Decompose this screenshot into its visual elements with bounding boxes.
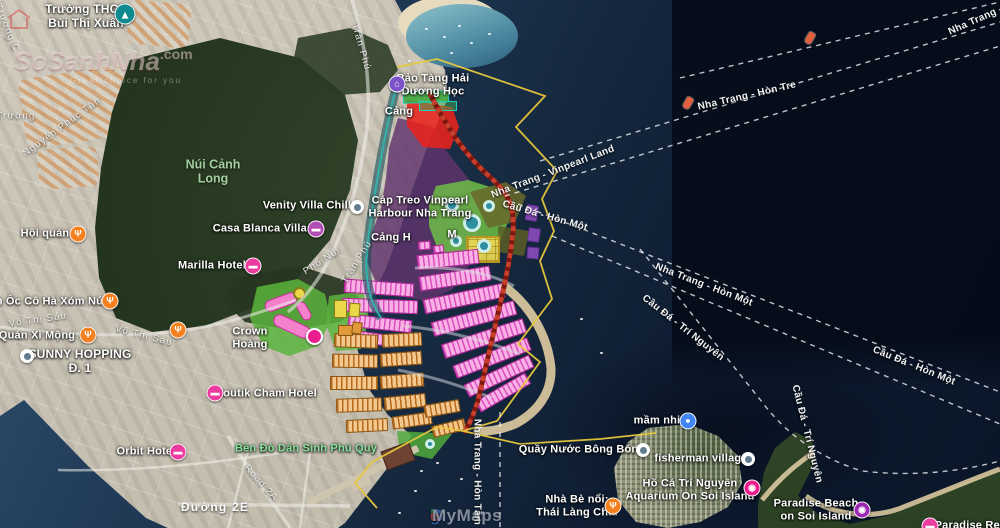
pink-marker-icon[interactable] bbox=[306, 328, 323, 345]
orange-housing-row bbox=[431, 418, 467, 438]
roundabout bbox=[425, 439, 435, 449]
icon-glyph: Ψ bbox=[174, 326, 181, 335]
cang-m-fragment-label[interactable]: M bbox=[447, 229, 456, 242]
school-icon[interactable]: ▴ bbox=[115, 4, 136, 25]
dot-center bbox=[640, 447, 647, 454]
cap-treo-vinpearl-label[interactable]: Cáp Treo VinpearlHarbour Nha Trang bbox=[368, 194, 471, 219]
small-boat-dot bbox=[470, 42, 473, 44]
sunny-hopping-label[interactable]: SUNNY HOPPINGĐ. 1 bbox=[28, 348, 131, 376]
orange-housing-row bbox=[332, 354, 378, 369]
small-boat-dot bbox=[425, 28, 428, 30]
boutik-cham-hotel-label[interactable]: Boutik Cham Hotel bbox=[215, 388, 317, 401]
pink-housing-row bbox=[432, 244, 444, 253]
small-boat-dot bbox=[420, 470, 423, 472]
orange-housing-row bbox=[382, 332, 423, 348]
small-boat-dot bbox=[414, 490, 417, 492]
small-boat-dot bbox=[600, 352, 603, 354]
restaurant-icon[interactable]: Ψ bbox=[170, 322, 187, 339]
violet-block bbox=[527, 227, 541, 243]
icon-glyph: ⌂ bbox=[394, 80, 399, 89]
quay-nuoc-bong-bong-label[interactable]: Quầy Nước Bông Bóng bbox=[519, 444, 646, 457]
orange-housing-row bbox=[380, 351, 423, 368]
icon-glyph: ● bbox=[685, 417, 690, 426]
hotel-icon[interactable]: ▬ bbox=[308, 221, 325, 238]
small-boat-dot bbox=[580, 318, 583, 320]
cang-h-fragment-label[interactable]: Cảng H bbox=[371, 232, 411, 245]
icon-glyph: Ψ bbox=[74, 230, 81, 239]
bao-tang-hai-duong-hoc-label[interactable]: Bảo Tàng HảiDương Học bbox=[397, 72, 470, 97]
icon-glyph: ▬ bbox=[312, 225, 321, 234]
quan-xi-mong-label[interactable]: Quán Xì Mộng bbox=[0, 330, 75, 343]
icon-glyph: ▬ bbox=[211, 389, 220, 398]
dot-icon[interactable] bbox=[636, 443, 650, 457]
icon-glyph: ▬ bbox=[926, 522, 935, 528]
small-boat-dot bbox=[443, 36, 446, 38]
kindergarten-icon[interactable]: ● bbox=[680, 413, 697, 430]
icon-glyph: ▬ bbox=[249, 262, 258, 271]
small-boat-dot bbox=[450, 52, 453, 54]
small-boat-dot bbox=[398, 512, 401, 514]
casa-blanca-villas-label[interactable]: Casa Blanca Villas bbox=[213, 223, 314, 236]
plan-yellow-block bbox=[348, 303, 360, 318]
mymaps-label: MyMaps bbox=[432, 506, 502, 526]
cang-cau-da-label[interactable]: Cảng bbox=[385, 106, 413, 119]
hoi-quan-label[interactable]: Hội quán bbox=[21, 228, 70, 241]
dot-center bbox=[24, 353, 31, 360]
pink-housing-row bbox=[416, 249, 479, 270]
orange-housing-row bbox=[330, 376, 378, 390]
hotel-icon[interactable]: ▬ bbox=[207, 385, 224, 402]
ho-ca-tri-nguyen-aquarium-label[interactable]: Hồ Cá Trí NguyênAquarium On Soi Island bbox=[625, 477, 754, 502]
plan-orange-block bbox=[351, 321, 363, 334]
hotel-icon[interactable]: ▬ bbox=[170, 444, 187, 461]
restaurant-icon[interactable]: Ψ bbox=[70, 226, 87, 243]
small-boat-dot bbox=[488, 33, 491, 35]
camera-icon[interactable]: ◉ bbox=[744, 480, 761, 497]
icon-glyph: ▬ bbox=[174, 448, 183, 457]
orange-housing-row bbox=[380, 372, 425, 389]
orbit-hotel-label[interactable]: Orbit Hotel bbox=[116, 446, 175, 459]
roundabout bbox=[483, 200, 495, 212]
orange-housing-row bbox=[383, 393, 426, 411]
pink-housing-row bbox=[344, 279, 415, 298]
orange-housing-row bbox=[423, 399, 461, 418]
small-boat-dot bbox=[408, 60, 411, 62]
dot-center bbox=[354, 204, 361, 211]
marilla-hotel-label[interactable]: Marilla Hotel bbox=[178, 260, 246, 273]
restaurant-icon[interactable]: Ψ bbox=[102, 293, 119, 310]
restaurant-icon[interactable]: Ψ bbox=[80, 327, 97, 344]
restaurant-icon[interactable]: Ψ bbox=[605, 498, 622, 515]
crown-hoang-label[interactable]: CrownHoàng bbox=[232, 325, 267, 350]
paradise-beach-label[interactable]: Paradise Beachon Soi Island bbox=[774, 497, 859, 522]
icon-glyph: Ψ bbox=[106, 297, 113, 306]
paradise-resort-label[interactable]: Paradise Resort bbox=[935, 520, 1000, 528]
icon-glyph: Ψ bbox=[84, 331, 91, 340]
camera-icon[interactable]: ◉ bbox=[854, 502, 871, 519]
hotel-icon[interactable]: ▬ bbox=[922, 518, 939, 528]
sosanhnha-watermark: SoSanhNha.com bbox=[14, 46, 160, 77]
icon-glyph: ◉ bbox=[748, 484, 756, 493]
plan-yellow-block bbox=[334, 300, 347, 318]
ben-do-dan-sinh-phu-quy-label[interactable]: Bến Đò Dân Sinh Phú Quý bbox=[235, 443, 377, 456]
icon-glyph: ◉ bbox=[858, 506, 866, 515]
roundabout bbox=[477, 239, 491, 253]
hotel-icon[interactable]: ▬ bbox=[245, 258, 262, 275]
resort-feature bbox=[293, 287, 306, 300]
dot-center bbox=[745, 456, 752, 463]
small-boat-dot bbox=[448, 500, 451, 502]
fisherman-village-label[interactable]: fisherman village bbox=[654, 453, 747, 466]
mam-nhi-label[interactable]: mầm nhi bbox=[634, 415, 681, 428]
quan-oc-co-ha-xom-nui-label[interactable]: Quán Ốc Cô Hà Xóm Núi bbox=[0, 296, 106, 309]
dot-icon[interactable] bbox=[20, 349, 34, 363]
area-label-nui-canh-long: Núi CảnhLong bbox=[186, 158, 241, 187]
orange-housing-row bbox=[346, 418, 389, 433]
icon-glyph: ▴ bbox=[122, 8, 128, 20]
orange-housing-row bbox=[336, 397, 382, 413]
venity-villa-chill-label[interactable]: Venity Villa Chill bbox=[263, 200, 351, 213]
dot-icon[interactable] bbox=[741, 452, 755, 466]
small-boat-dot bbox=[458, 25, 461, 27]
icon-glyph: Ψ bbox=[609, 502, 616, 511]
dot-icon[interactable] bbox=[350, 200, 364, 214]
pink-housing-row bbox=[418, 240, 432, 250]
small-boat-dot bbox=[436, 462, 439, 464]
museum-icon[interactable]: ⌂ bbox=[389, 76, 406, 93]
watermark-tagline: Great choice for you bbox=[70, 76, 182, 85]
small-boat-dot bbox=[460, 478, 463, 480]
satellite-map-canvas[interactable]: SoSanhNha.com Great choice for you Googl… bbox=[0, 0, 1000, 528]
street-label: Đường 2E bbox=[181, 500, 249, 514]
watermark-brand: SoSanhNha bbox=[14, 46, 160, 76]
violet-block bbox=[526, 246, 539, 259]
street-label: Trường bbox=[0, 111, 35, 122]
watermark-suffix: .com bbox=[160, 46, 193, 62]
